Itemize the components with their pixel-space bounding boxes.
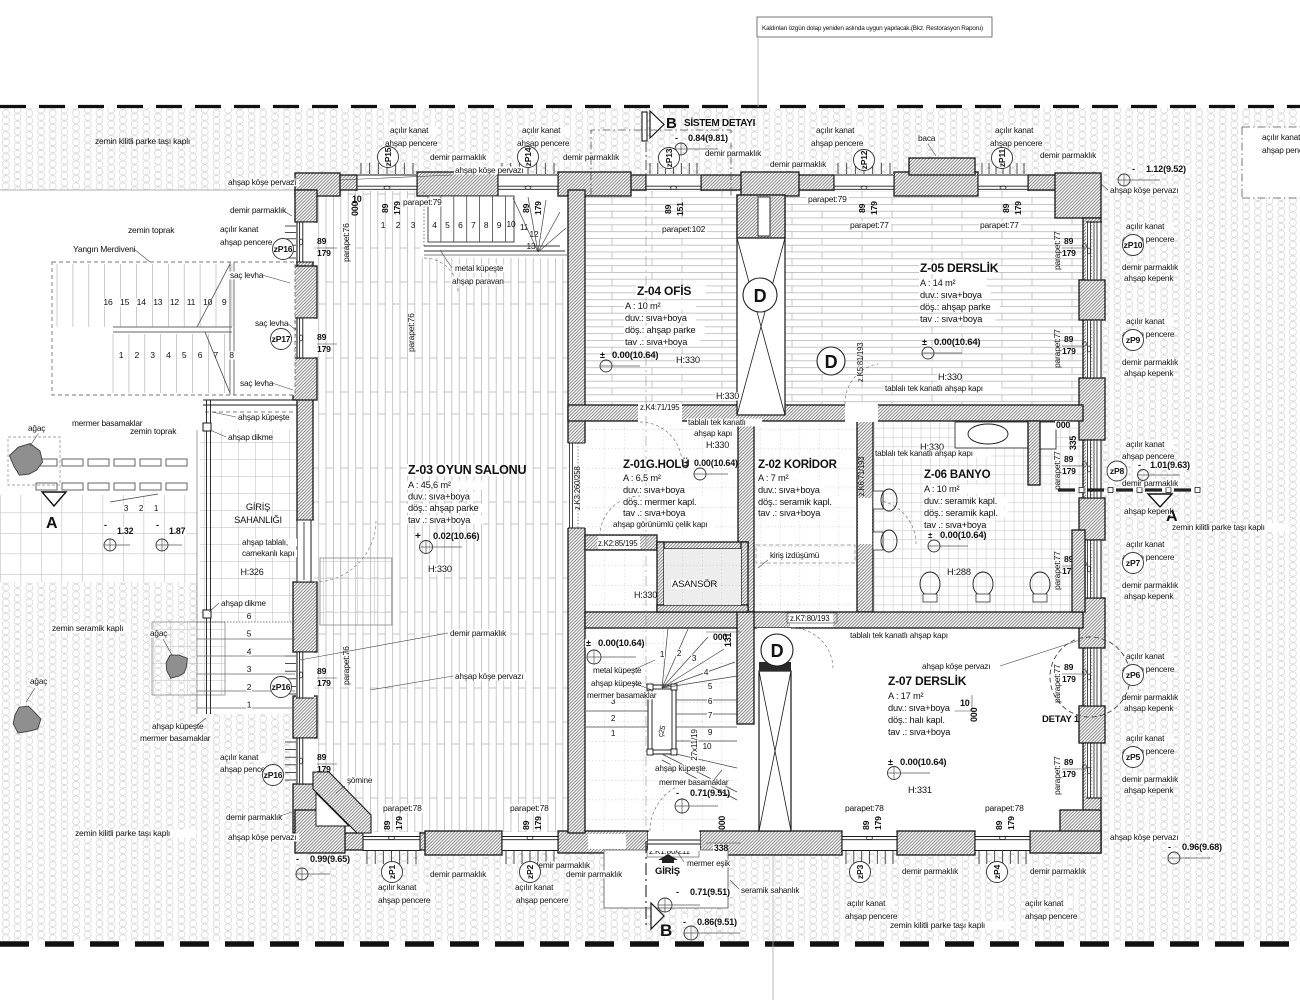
svg-text:z.K2:85/195: z.K2:85/195 [598, 539, 638, 548]
svg-text:GİRİŞ: GİRİŞ [655, 866, 680, 877]
svg-text:4: 4 [432, 220, 437, 230]
svg-text:10: 10 [203, 297, 213, 307]
svg-text:D: D [825, 352, 838, 372]
svg-text:ahşap pencere: ahşap pencere [378, 895, 431, 905]
svg-text:zemin seramik kaplı: zemin seramik kaplı [52, 623, 123, 633]
svg-text:demir parmaklık: demir parmaklık [534, 860, 591, 870]
svg-text:89: 89 [1001, 203, 1011, 213]
svg-text:zP2: zP2 [525, 864, 535, 879]
svg-text:açılır kanat: açılır kanat [995, 125, 1034, 135]
svg-text:H:331: H:331 [908, 785, 932, 795]
svg-text:şömine: şömine [347, 776, 373, 785]
svg-text:demir parmaklık: demir parmaklık [1122, 692, 1179, 702]
svg-text:11: 11 [187, 297, 196, 307]
svg-text:ahşap köşe pervazı: ahşap köşe pervazı [1110, 185, 1178, 195]
svg-text:89: 89 [1064, 662, 1074, 672]
svg-text:-: - [676, 788, 679, 798]
svg-text:zP5: zP5 [1126, 752, 1141, 762]
svg-text:ahşap pencere: ahşap pencere [1262, 145, 1300, 155]
svg-text:1: 1 [660, 650, 665, 659]
svg-text:ahşap köşe pervazı: ahşap köşe pervazı [228, 177, 296, 187]
svg-text:6: 6 [247, 611, 252, 621]
svg-text:metal küpeşte: metal küpeşte [593, 666, 642, 675]
svg-text:179: 179 [533, 816, 543, 830]
svg-text:döş.: mermer kapl.: döş.: mermer kapl. [623, 497, 696, 507]
svg-text:0.71(9.51): 0.71(9.51) [690, 887, 730, 897]
svg-text:179: 179 [317, 678, 331, 688]
svg-text:±: ± [922, 337, 927, 347]
svg-text:-: - [296, 854, 299, 864]
svg-text:demir parmaklık: demir parmaklık [770, 159, 827, 169]
svg-text:14: 14 [137, 297, 147, 307]
svg-text:179: 179 [1062, 769, 1076, 779]
svg-text:89: 89 [317, 666, 327, 676]
svg-text:3: 3 [247, 664, 252, 674]
svg-text:5: 5 [247, 629, 252, 639]
svg-text:H:330: H:330 [706, 440, 729, 450]
svg-text:demir parmaklık: demir parmaklık [1030, 866, 1087, 876]
svg-text:335: 335 [1068, 436, 1078, 450]
svg-text:zP12: zP12 [859, 150, 869, 169]
svg-text:zP10: zP10 [1124, 240, 1143, 250]
svg-text:0.00(10.64): 0.00(10.64) [900, 757, 946, 768]
svg-text:duv.: sıva+boya: duv.: sıva+boya [888, 703, 951, 713]
svg-text:tav .: sıva+boya: tav .: sıva+boya [625, 337, 688, 347]
svg-text:ahşap dikme: ahşap dikme [221, 598, 266, 608]
svg-text:tablalı tek kanatlı: tablalı tek kanatlı [688, 418, 746, 427]
svg-text:demir parmaklık: demir parmaklık [902, 866, 959, 876]
svg-text:ahşap kepenk: ahşap kepenk [1124, 368, 1174, 378]
svg-text:179: 179 [317, 344, 331, 354]
svg-text:0.00(10.64): 0.00(10.64) [612, 350, 658, 361]
svg-text:tav .: sıva+boya: tav .: sıva+boya [758, 508, 821, 518]
svg-text:±: ± [888, 757, 893, 767]
svg-text:döş.: seramik kapl.: döş.: seramik kapl. [758, 497, 832, 507]
svg-text:Kaldırılan özgün dolap yeniden: Kaldırılan özgün dolap yeniden aslında u… [762, 25, 983, 32]
svg-text:demir parmaklık: demir parmaklık [226, 812, 283, 822]
svg-text:89: 89 [380, 203, 390, 213]
svg-text:açılır kanat: açılır kanat [220, 224, 259, 234]
svg-text:zP15: zP15 [383, 147, 393, 166]
svg-text:demir parmaklık: demir parmaklık [705, 148, 762, 158]
svg-text:demir parmaklık: demir parmaklık [430, 869, 487, 879]
svg-text:±: ± [600, 350, 605, 360]
svg-text:açılır kanat: açılır kanat [1126, 651, 1165, 661]
svg-text:4: 4 [247, 646, 252, 656]
svg-text:2: 2 [677, 649, 682, 658]
svg-text:89: 89 [1064, 236, 1074, 246]
svg-text:parapet:77: parapet:77 [1052, 451, 1062, 490]
svg-text:demir parmaklık: demir parmaklık [1040, 150, 1097, 160]
svg-text:D: D [771, 641, 784, 661]
svg-text:ahşap pencere: ahşap pencere [1025, 911, 1078, 921]
svg-text:Z-03 OYUN SALONU: Z-03 OYUN SALONU [408, 463, 527, 477]
svg-text:Z-02 KORİDOR: Z-02 KORİDOR [758, 458, 838, 471]
svg-text:179: 179 [869, 201, 879, 215]
svg-text:H:330: H:330 [676, 355, 700, 365]
svg-text:2: 2 [247, 682, 252, 692]
svg-text:ahşap köşe pervazı: ahşap köşe pervazı [922, 661, 990, 671]
svg-text:179: 179 [873, 816, 883, 830]
svg-text:parapet:79: parapet:79 [808, 194, 847, 204]
svg-text:döş.: halı kapl.: döş.: halı kapl. [888, 715, 945, 725]
svg-text:179: 179 [1062, 466, 1076, 476]
svg-text:1: 1 [247, 700, 252, 710]
svg-text:B: B [660, 921, 672, 940]
svg-text:parapet:77: parapet:77 [1052, 329, 1062, 368]
svg-text:0.99(9.65): 0.99(9.65) [310, 854, 350, 864]
svg-text:açılır kanat: açılır kanat [1126, 733, 1165, 743]
svg-text:zP4: zP4 [992, 864, 1002, 879]
svg-text:6: 6 [708, 697, 713, 706]
svg-text:açılır kanat: açılır kanat [1126, 316, 1165, 326]
svg-text:açılır kanat: açılır kanat [1126, 539, 1165, 549]
svg-text:1: 1 [611, 729, 616, 738]
svg-text:tav .: sıva+boya: tav .: sıva+boya [924, 520, 987, 530]
svg-text:metal küpeşte: metal küpeşte [455, 264, 504, 273]
svg-text:5: 5 [445, 220, 450, 230]
svg-text:ahşap kepenk: ahşap kepenk [1124, 506, 1174, 516]
svg-text:zP17: zP17 [272, 334, 291, 344]
svg-text:ahşap köşe pervazı: ahşap köşe pervazı [228, 832, 296, 842]
svg-text:döş.: seramik kapl.: döş.: seramik kapl. [924, 508, 998, 518]
svg-text:tav .: sıva+boya: tav .: sıva+boya [888, 727, 951, 737]
svg-text:döş.: ahşap parke: döş.: ahşap parke [408, 503, 479, 513]
svg-text:Z-05 DERSLİK: Z-05 DERSLİK [920, 260, 999, 275]
svg-text:demir parmaklık: demir parmaklık [1122, 262, 1179, 272]
svg-text:demir parmaklık: demir parmaklık [563, 152, 620, 162]
svg-text:zemin kilitli parke taşı kaplı: zemin kilitli parke taşı kaplı [75, 828, 170, 838]
svg-text:1.01(9.63): 1.01(9.63) [1150, 460, 1190, 470]
svg-text:zP11: zP11 [997, 148, 1007, 167]
svg-text:10: 10 [507, 219, 516, 229]
svg-text:zP6: zP6 [1126, 670, 1141, 680]
svg-text:parapet:77: parapet:77 [1052, 664, 1062, 703]
svg-text:duv.: sıva+boya: duv.: sıva+boya [920, 290, 983, 300]
svg-text:açılır kanat: açılır kanat [220, 752, 259, 762]
svg-text:2: 2 [135, 350, 140, 360]
svg-text:89: 89 [317, 236, 327, 246]
svg-text:SAHANLIĞI: SAHANLIĞI [234, 515, 282, 525]
svg-text:9: 9 [497, 220, 502, 230]
svg-text:27x11/19: 27x11/19 [690, 729, 699, 761]
svg-text:1.87: 1.87 [169, 526, 186, 536]
svg-text:179: 179 [392, 201, 402, 215]
svg-text:9: 9 [222, 297, 227, 307]
svg-text:2: 2 [396, 220, 401, 230]
svg-text:açılır kanat: açılır kanat [816, 125, 855, 135]
svg-text:açılır kanat: açılır kanat [522, 125, 561, 135]
svg-text:kiriş izdüşümü: kiriş izdüşümü [770, 551, 820, 560]
svg-text:ahşap küpeşte: ahşap küpeşte [238, 412, 290, 422]
svg-text:açılır kanat: açılır kanat [1262, 132, 1300, 142]
svg-text:ağaç: ağaç [28, 423, 45, 433]
svg-text:zP1: zP1 [387, 864, 397, 879]
svg-text:ahşap dikme: ahşap dikme [228, 432, 273, 442]
svg-text:duv.: sıva+boya: duv.: sıva+boya [625, 313, 688, 323]
svg-text:Z-01G.HOLÜ: Z-01G.HOLÜ [623, 458, 689, 471]
svg-text:89: 89 [1064, 334, 1074, 344]
svg-text:A : 10 m²: A : 10 m² [924, 484, 960, 494]
svg-text:açılır kanat: açılır kanat [515, 882, 554, 892]
svg-text:zP3: zP3 [855, 864, 865, 879]
svg-text:Z-06 BANYO: Z-06 BANYO [924, 469, 991, 481]
svg-text:D: D [754, 286, 767, 306]
svg-text:demir parmaklık: demir parmaklık [566, 869, 623, 879]
svg-text:parapet:78: parapet:78 [985, 803, 1024, 813]
svg-text:ahşap köşe pervazı: ahşap köşe pervazı [1110, 832, 1178, 842]
svg-text:demir parmaklık: demir parmaklık [230, 205, 287, 215]
svg-text:parapet:78: parapet:78 [845, 803, 884, 813]
svg-text:camekanlı kapı: camekanlı kapı [242, 549, 294, 558]
svg-text:89: 89 [317, 752, 327, 762]
svg-text:H:330: H:330 [634, 590, 657, 600]
svg-text:H:288: H:288 [947, 567, 971, 577]
svg-text:89: 89 [861, 820, 871, 830]
svg-text:açılır kanat: açılır kanat [390, 125, 429, 135]
svg-text:ahşap pencere: ahşap pencere [516, 895, 569, 905]
svg-text:151: 151 [675, 202, 685, 216]
svg-text:0.71(9.51): 0.71(9.51) [690, 788, 730, 798]
svg-text:3: 3 [692, 654, 697, 663]
svg-text:zP16: zP16 [272, 682, 291, 692]
svg-text:0.02(10.66): 0.02(10.66) [433, 531, 479, 542]
svg-text:0.00(10.64): 0.00(10.64) [934, 337, 980, 348]
svg-text:ahşap pencere: ahşap pencere [811, 138, 864, 148]
svg-text:89: 89 [1064, 757, 1074, 767]
svg-text:+: + [415, 531, 421, 542]
svg-text:1: 1 [119, 350, 124, 360]
svg-text:A: A [46, 515, 58, 532]
svg-text:000: 000 [1056, 420, 1070, 430]
svg-text:10: 10 [960, 698, 970, 708]
svg-text:179: 179 [1013, 201, 1023, 215]
svg-text:tablalı tek kanatlı ahşap kapı: tablalı tek kanatlı ahşap kapı [885, 384, 983, 393]
svg-text:89: 89 [382, 820, 392, 830]
svg-text:0.00(10.64): 0.00(10.64) [598, 638, 644, 649]
svg-text:179: 179 [533, 201, 543, 215]
svg-text:parapet:76: parapet:76 [341, 223, 351, 262]
svg-text:ahşap kepenk: ahşap kepenk [1124, 273, 1174, 283]
svg-text:B: B [666, 115, 677, 132]
svg-text:179: 179 [1062, 248, 1076, 258]
svg-text:179: 179 [317, 248, 331, 258]
svg-text:açılır kanat: açılır kanat [1126, 439, 1165, 449]
svg-text:0.96(9.68): 0.96(9.68) [1182, 842, 1222, 852]
svg-text:ASANSÖR: ASANSÖR [672, 579, 717, 590]
svg-text:parapet:77: parapet:77 [1052, 551, 1062, 590]
svg-text:-: - [1138, 460, 1141, 470]
svg-text:-: - [104, 520, 107, 530]
svg-text:89: 89 [663, 204, 673, 214]
svg-text:mermer eşik: mermer eşik [687, 859, 731, 868]
svg-text:10: 10 [703, 742, 712, 751]
svg-text:5: 5 [708, 682, 713, 691]
svg-text:parapet:77: parapet:77 [1052, 231, 1062, 270]
svg-text:tav .: sıva+boya: tav .: sıva+boya [920, 314, 983, 324]
svg-text:ahşap pencere: ahşap pencere [845, 911, 898, 921]
svg-text:H:330: H:330 [716, 391, 739, 401]
svg-text:parapet:77: parapet:77 [850, 220, 889, 230]
svg-text:ahşap kapı: ahşap kapı [694, 429, 732, 438]
svg-text:11: 11 [520, 222, 529, 232]
svg-text:ahşap tablalı,: ahşap tablalı, [242, 538, 288, 547]
svg-text:açılır kanat: açılır kanat [847, 898, 886, 908]
svg-text:ahşap köşe pervazı: ahşap köşe pervazı [455, 165, 523, 175]
svg-text:Z-07 DERSLİK: Z-07 DERSLİK [888, 673, 967, 688]
svg-text:saç levha: saç levha [255, 318, 289, 328]
svg-text:ahşap görünümlü çelik kapı: ahşap görünümlü çelik kapı [613, 520, 707, 529]
svg-text:8: 8 [229, 350, 234, 360]
svg-text:89: 89 [521, 820, 531, 830]
svg-text:13: 13 [153, 297, 163, 307]
svg-text:döş.: ahşap parke: döş.: ahşap parke [920, 302, 991, 312]
svg-text:A : 10 m²: A : 10 m² [625, 301, 661, 311]
svg-text:açılır kanat: açılır kanat [378, 882, 417, 892]
svg-text:0.84(9.81): 0.84(9.81) [688, 133, 728, 143]
svg-text:parapet:78: parapet:78 [510, 803, 549, 813]
svg-text:zP13: zP13 [664, 148, 674, 167]
svg-text:3: 3 [150, 350, 155, 360]
svg-text:ahşap kepenk: ahşap kepenk [1124, 591, 1174, 601]
svg-text:baca: baca [918, 133, 936, 143]
svg-text:duv.: sıva+boya: duv.: sıva+boya [408, 492, 471, 502]
svg-text:DETAY 1: DETAY 1 [1042, 714, 1080, 725]
svg-text:zemin kilitli parke taşı kaplı: zemin kilitli parke taşı kaplı [95, 136, 190, 146]
svg-text:000: 000 [717, 816, 727, 830]
svg-text:z.K3:260/258: z.K3:260/258 [573, 466, 582, 510]
svg-text:parapet:76: parapet:76 [341, 646, 351, 685]
svg-text:demir parmaklık: demir parmaklık [1122, 580, 1179, 590]
svg-text:zP14: zP14 [523, 147, 533, 166]
svg-text:16: 16 [103, 297, 113, 307]
svg-text:A : 45,6 m²: A : 45,6 m² [408, 480, 451, 490]
svg-text:000: 000 [350, 201, 360, 216]
svg-text:duv.: sıva+boya: duv.: sıva+boya [758, 485, 821, 495]
svg-text:duv.: seramik kapl.: duv.: seramik kapl. [924, 496, 997, 506]
svg-text:89: 89 [857, 203, 867, 213]
svg-text:SİSTEM DETAYI: SİSTEM DETAYI [684, 116, 756, 129]
svg-text:7: 7 [708, 711, 713, 720]
svg-text:89: 89 [1064, 454, 1074, 464]
svg-text:5: 5 [182, 350, 187, 360]
svg-text:zP8: zP8 [1110, 466, 1125, 476]
svg-text:3: 3 [411, 220, 416, 230]
svg-text:zemin toprak: zemin toprak [128, 225, 175, 235]
svg-text:açılır kanat: açılır kanat [1025, 898, 1064, 908]
svg-text:2: 2 [611, 714, 616, 723]
svg-text:8: 8 [484, 220, 489, 230]
svg-text:6: 6 [198, 350, 203, 360]
svg-text:zP7: zP7 [1126, 558, 1141, 568]
svg-text:A : 17 m²: A : 17 m² [888, 691, 924, 701]
svg-text:A : 7 m²: A : 7 m² [758, 473, 789, 483]
svg-text:demir parmaklık: demir parmaklık [1122, 478, 1179, 488]
svg-text:000: 000 [969, 707, 979, 722]
svg-text:ahşap köşe pervazı: ahşap köşe pervazı [455, 671, 523, 681]
svg-text:ağaç: ağaç [30, 676, 47, 686]
svg-text:H:330: H:330 [938, 372, 962, 382]
svg-text:H:330: H:330 [428, 564, 452, 574]
svg-text:tav .: sıva+boya: tav .: sıva+boya [623, 508, 686, 518]
svg-text:parapet:78: parapet:78 [383, 803, 422, 813]
svg-text:H:326: H:326 [240, 567, 263, 577]
svg-text:tablalı tek kanatlı ahşap kapı: tablalı tek kanatlı ahşap kapı [875, 449, 973, 458]
svg-text:4: 4 [704, 668, 709, 677]
svg-text:parapet:79: parapet:79 [403, 197, 442, 207]
svg-text:ahşap küpeşte: ahşap küpeşte [655, 764, 706, 773]
svg-text:179: 179 [1006, 816, 1016, 830]
svg-text:ahşap pencere: ahşap pencere [220, 237, 273, 247]
svg-text:12: 12 [170, 297, 180, 307]
svg-text:131: 131 [723, 633, 733, 647]
svg-text:ahşap kepenk: ahşap kepenk [1124, 703, 1174, 713]
svg-text:1: 1 [381, 220, 386, 230]
svg-text:zP16: zP16 [274, 244, 293, 254]
svg-text:ahşap pencere: ahşap pencere [990, 138, 1043, 148]
svg-text:mermer basamaklar: mermer basamaklar [659, 778, 729, 787]
svg-text:4: 4 [166, 350, 171, 360]
svg-text:-: - [156, 520, 159, 530]
svg-text:Yangın Merdiveni: Yangın Merdiveni [73, 244, 136, 254]
svg-text:saç levha: saç levha [240, 378, 274, 388]
svg-text:±: ± [586, 638, 591, 648]
svg-text:z.K7:80/193: z.K7:80/193 [790, 614, 829, 623]
svg-text:tablalı tek kanatlı ahşap kapı: tablalı tek kanatlı ahşap kapı [850, 631, 948, 640]
svg-text:179: 179 [1062, 674, 1076, 684]
svg-text:7: 7 [471, 220, 476, 230]
svg-text:z.K6:71/193: z.K6:71/193 [857, 457, 866, 496]
svg-text:demir parmaklık: demir parmaklık [430, 152, 487, 162]
svg-text:0.86(9.51): 0.86(9.51) [697, 917, 737, 927]
svg-text:89: 89 [317, 332, 327, 342]
svg-text:9: 9 [708, 728, 713, 737]
svg-text:A : 14 m²: A : 14 m² [920, 278, 956, 288]
svg-text:179: 179 [1062, 346, 1076, 356]
svg-text:zemin kilitli parke taşı kaplı: zemin kilitli parke taşı kaplı [890, 920, 985, 930]
svg-text:-: - [675, 133, 678, 143]
svg-text:15: 15 [120, 297, 130, 307]
svg-text:-: - [683, 917, 686, 927]
svg-text:duv.: sıva+boya: duv.: sıva+boya [623, 485, 686, 495]
svg-text:saç levha: saç levha [230, 270, 264, 280]
svg-text:z.K5:81/193: z.K5:81/193 [856, 343, 865, 382]
svg-text:ağaç: ağaç [150, 628, 167, 638]
svg-text:-: - [676, 887, 679, 897]
svg-text:179: 179 [394, 816, 404, 830]
svg-text:mermer basamaklar: mermer basamaklar [72, 418, 143, 428]
svg-text:mermer basamaklar: mermer basamaklar [140, 733, 211, 743]
svg-text:demir parmaklık: demir parmaklık [1122, 774, 1179, 784]
svg-text:mermer basamaklar: mermer basamaklar [587, 691, 657, 700]
svg-text:-: - [1168, 842, 1171, 852]
svg-text:0.00(10.64): 0.00(10.64) [694, 458, 738, 468]
svg-text:GİRİŞ: GİRİŞ [246, 502, 270, 512]
svg-text:-: - [1132, 164, 1135, 174]
svg-text:tav .: sıva+boya: tav .: sıva+boya [408, 515, 471, 525]
svg-text:zP9: zP9 [1126, 335, 1141, 345]
svg-text:1.12(9.52): 1.12(9.52) [1146, 164, 1186, 174]
svg-text:döş.: ahşap parke: döş.: ahşap parke [625, 325, 696, 335]
svg-text:zemin kilitli parke taşı kaplı: zemin kilitli parke taşı kaplı [1172, 522, 1265, 532]
svg-text:6: 6 [458, 220, 463, 230]
svg-text:parapet:77: parapet:77 [980, 220, 1019, 230]
svg-text:ahşap kepenk: ahşap kepenk [1124, 785, 1174, 795]
svg-text:338: 338 [714, 843, 728, 853]
svg-text:A : 6,5 m²: A : 6,5 m² [623, 473, 661, 483]
svg-text:demir parmaklık: demir parmaklık [450, 628, 507, 638]
svg-text:ahşap paravan: ahşap paravan [452, 277, 504, 286]
